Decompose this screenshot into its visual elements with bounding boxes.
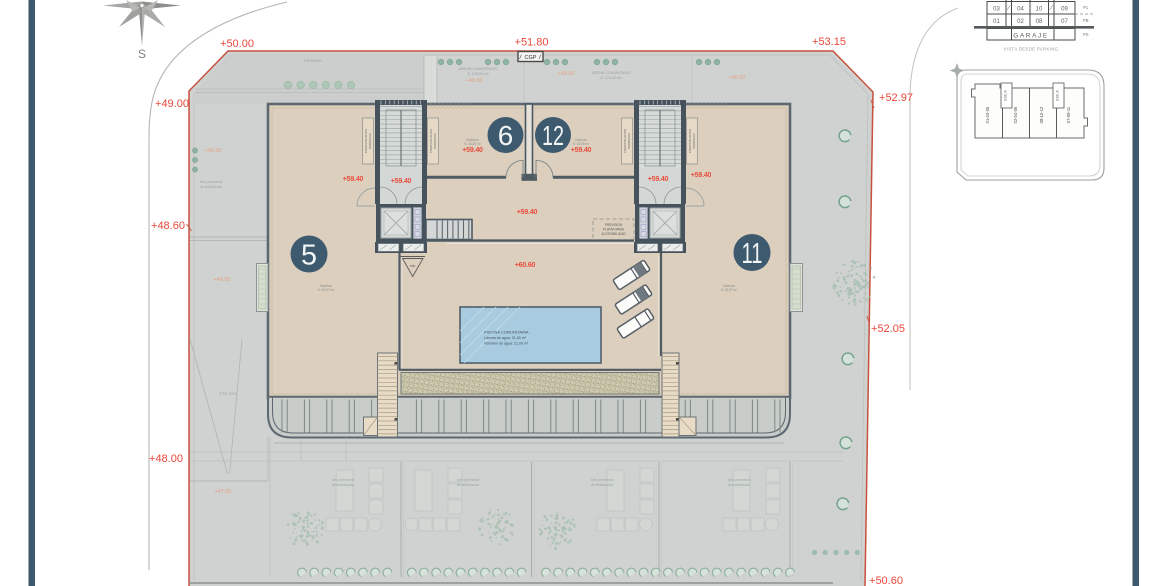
svg-text:seto perimetral: seto perimetral (728, 478, 751, 482)
svg-text:+49.50: +49.50 (729, 75, 746, 81)
svg-text:ACCESIBILIDAD: ACCESIBILIDAD (601, 232, 626, 236)
svg-text:S: 16,00 m²: S: 16,00 m² (573, 142, 589, 146)
svg-text:min: min (410, 264, 416, 268)
svg-text:de delimitación: de delimitación (332, 483, 355, 487)
svg-text:seto perimetral: seto perimetral (200, 180, 223, 184)
svg-text:09: 09 (1061, 7, 1068, 13)
svg-text:BARBACOA: BARBACOA (692, 133, 696, 149)
svg-text:de delimitación: de delimitación (591, 483, 614, 487)
svg-text:+59.40: +59.40 (343, 176, 364, 183)
svg-text:JARDIN COMUNITARIO: JARDIN COMUNITARIO (591, 71, 630, 75)
svg-text:10: 10 (1036, 7, 1043, 13)
svg-text:+50.60: +50.60 (869, 575, 903, 586)
svg-text:07: 07 (1061, 19, 1068, 25)
svg-text:de delimitación: de delimitación (457, 483, 480, 487)
svg-text:+59.40: +59.40 (648, 176, 669, 183)
svg-text:PREVISION: PREVISION (605, 223, 623, 227)
svg-text:02-04-06: 02-04-06 (1013, 106, 1018, 123)
svg-text:08: 08 (1036, 19, 1043, 25)
svg-text:+51.80: +51.80 (515, 37, 549, 49)
svg-text:Lámina de agua: 31,00 m²: Lámina de agua: 31,00 m² (484, 336, 527, 340)
svg-text:VISTA DESDE PARKING: VISTA DESDE PARKING (1004, 47, 1059, 52)
svg-text:PS: PS (1083, 32, 1089, 37)
svg-text:01: 01 (993, 19, 1000, 25)
svg-text:PISCINA COMUNITARIA: PISCINA COMUNITARIA (484, 330, 529, 335)
svg-text:02: 02 (1017, 19, 1024, 25)
svg-text:04: 04 (1017, 7, 1024, 13)
svg-text:+59.40: +59.40 (691, 172, 712, 179)
svg-text:BARBACOA: BARBACOA (627, 133, 631, 149)
svg-text:+49.50: +49.50 (466, 78, 483, 84)
svg-text:07-09-11: 07-09-11 (1066, 106, 1071, 123)
svg-text:S: 53,97 m²: S: 53,97 m² (318, 288, 334, 292)
svg-text:S: 53,97 m²: S: 53,97 m² (721, 288, 737, 292)
svg-text:+48.60: +48.60 (151, 220, 185, 232)
svg-text:S: S (138, 47, 146, 61)
svg-text:08-10-12: 08-10-12 (1039, 106, 1044, 123)
svg-text:PTE 16%: PTE 16% (220, 391, 237, 396)
svg-text:+59.40: +59.40 (391, 178, 412, 185)
svg-text:PIEDRAS: PIEDRAS (304, 58, 322, 63)
svg-text:S: 16,00 m²: S: 16,00 m² (464, 142, 480, 146)
svg-text:+53.15: +53.15 (812, 36, 846, 48)
svg-text:+49.00: +49.00 (155, 98, 189, 110)
svg-text:+48.00: +48.00 (149, 453, 183, 465)
svg-text:Volumen de agua: 21,00 m³: Volumen de agua: 21,00 m³ (484, 342, 529, 346)
svg-text:+59.40: +59.40 (571, 147, 592, 154)
svg-text:+49.50: +49.50 (558, 71, 575, 77)
svg-text:S: 120,00 m2: S: 120,00 m2 (467, 72, 488, 76)
svg-text:+49.50: +49.50 (214, 277, 231, 283)
svg-text:seto perimetral: seto perimetral (332, 478, 355, 482)
svg-text:+52.05: +52.05 (871, 323, 905, 335)
svg-text:PLATAFORMA: PLATAFORMA (603, 228, 625, 232)
svg-text:de delimitación: de delimitación (728, 483, 751, 487)
svg-text:+59.40: +59.40 (517, 209, 538, 216)
svg-text:seto perimetral: seto perimetral (591, 478, 614, 482)
svg-text:GARAJE: GARAJE (1013, 33, 1049, 40)
svg-text:+59.40: +59.40 (462, 147, 483, 154)
svg-text:JARDIN COMUNITARIO: JARDIN COMUNITARIO (458, 67, 497, 71)
svg-text:ESC.A: ESC.A (1056, 90, 1060, 101)
svg-text:PB: PB (1083, 18, 1089, 23)
svg-text:S: 120,00 m2: S: 120,00 m2 (600, 76, 621, 80)
svg-text:5: 5 (301, 239, 317, 271)
svg-text:BARBACOA: BARBACOA (368, 133, 372, 149)
svg-text:+60.60: +60.60 (515, 262, 536, 269)
svg-text:11: 11 (742, 238, 763, 270)
svg-text:6: 6 (498, 120, 514, 151)
svg-text:ESC.A: ESC.A (1004, 90, 1008, 101)
svg-text:12: 12 (542, 120, 564, 151)
svg-text:seto perimetral: seto perimetral (457, 478, 480, 482)
svg-text:CGP: CGP (525, 55, 537, 61)
svg-text:03: 03 (993, 7, 1000, 13)
svg-text:de delimitación: de delimitación (200, 185, 223, 189)
svg-text:BARBACOA: BARBACOA (433, 133, 437, 149)
svg-text:+52.97: +52.97 (879, 92, 913, 104)
svg-text:+50.00: +50.00 (220, 38, 254, 50)
svg-text:+49.50: +49.50 (205, 148, 222, 154)
svg-text:+47.00: +47.00 (215, 489, 232, 495)
svg-text:01-03-05: 01-03-05 (985, 106, 990, 123)
svg-text:P1: P1 (1083, 5, 1089, 10)
